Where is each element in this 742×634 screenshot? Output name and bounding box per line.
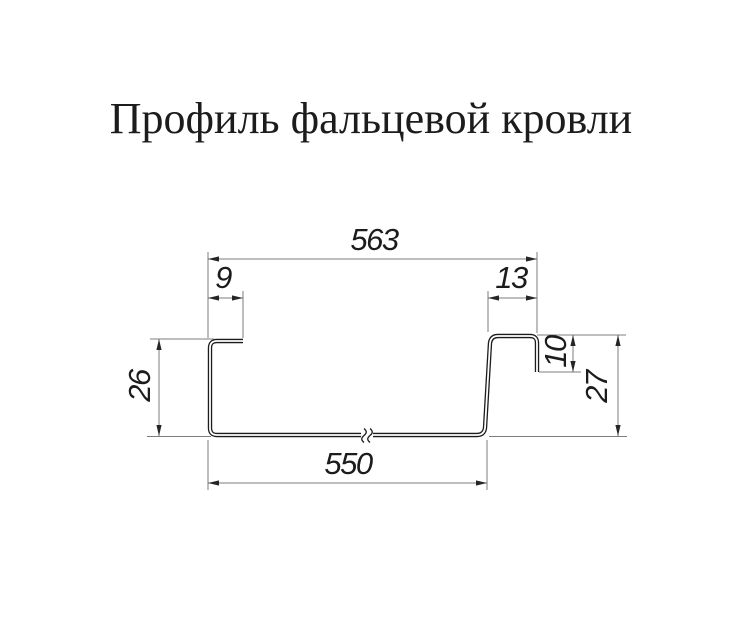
drawing-canvas: Профиль фальцевой кровли bbox=[0, 0, 742, 634]
profile-drawing bbox=[0, 0, 742, 634]
arrowhead bbox=[526, 256, 537, 261]
arrowhead bbox=[615, 335, 620, 346]
arrowhead bbox=[526, 295, 537, 300]
arrowhead bbox=[476, 480, 487, 485]
dim-label-left-flange-width: 9 bbox=[215, 260, 231, 296]
dim-label-overall-width: 563 bbox=[350, 222, 397, 258]
arrowhead bbox=[615, 425, 620, 436]
arrowhead bbox=[208, 295, 219, 300]
dim-label-lock-height: 10 bbox=[538, 336, 574, 367]
arrowhead bbox=[488, 295, 499, 300]
dim-label-right-height: 27 bbox=[579, 371, 615, 402]
arrowhead bbox=[156, 339, 161, 350]
break-mark bbox=[361, 428, 373, 443]
dim-label-left-height: 26 bbox=[122, 370, 158, 401]
dim-label-right-flange-width: 13 bbox=[495, 260, 526, 296]
arrowhead bbox=[208, 480, 219, 485]
dim-label-base-width: 550 bbox=[324, 446, 371, 482]
profile-outline bbox=[210, 336, 537, 435]
arrowhead bbox=[156, 425, 161, 436]
arrowhead bbox=[232, 295, 243, 300]
